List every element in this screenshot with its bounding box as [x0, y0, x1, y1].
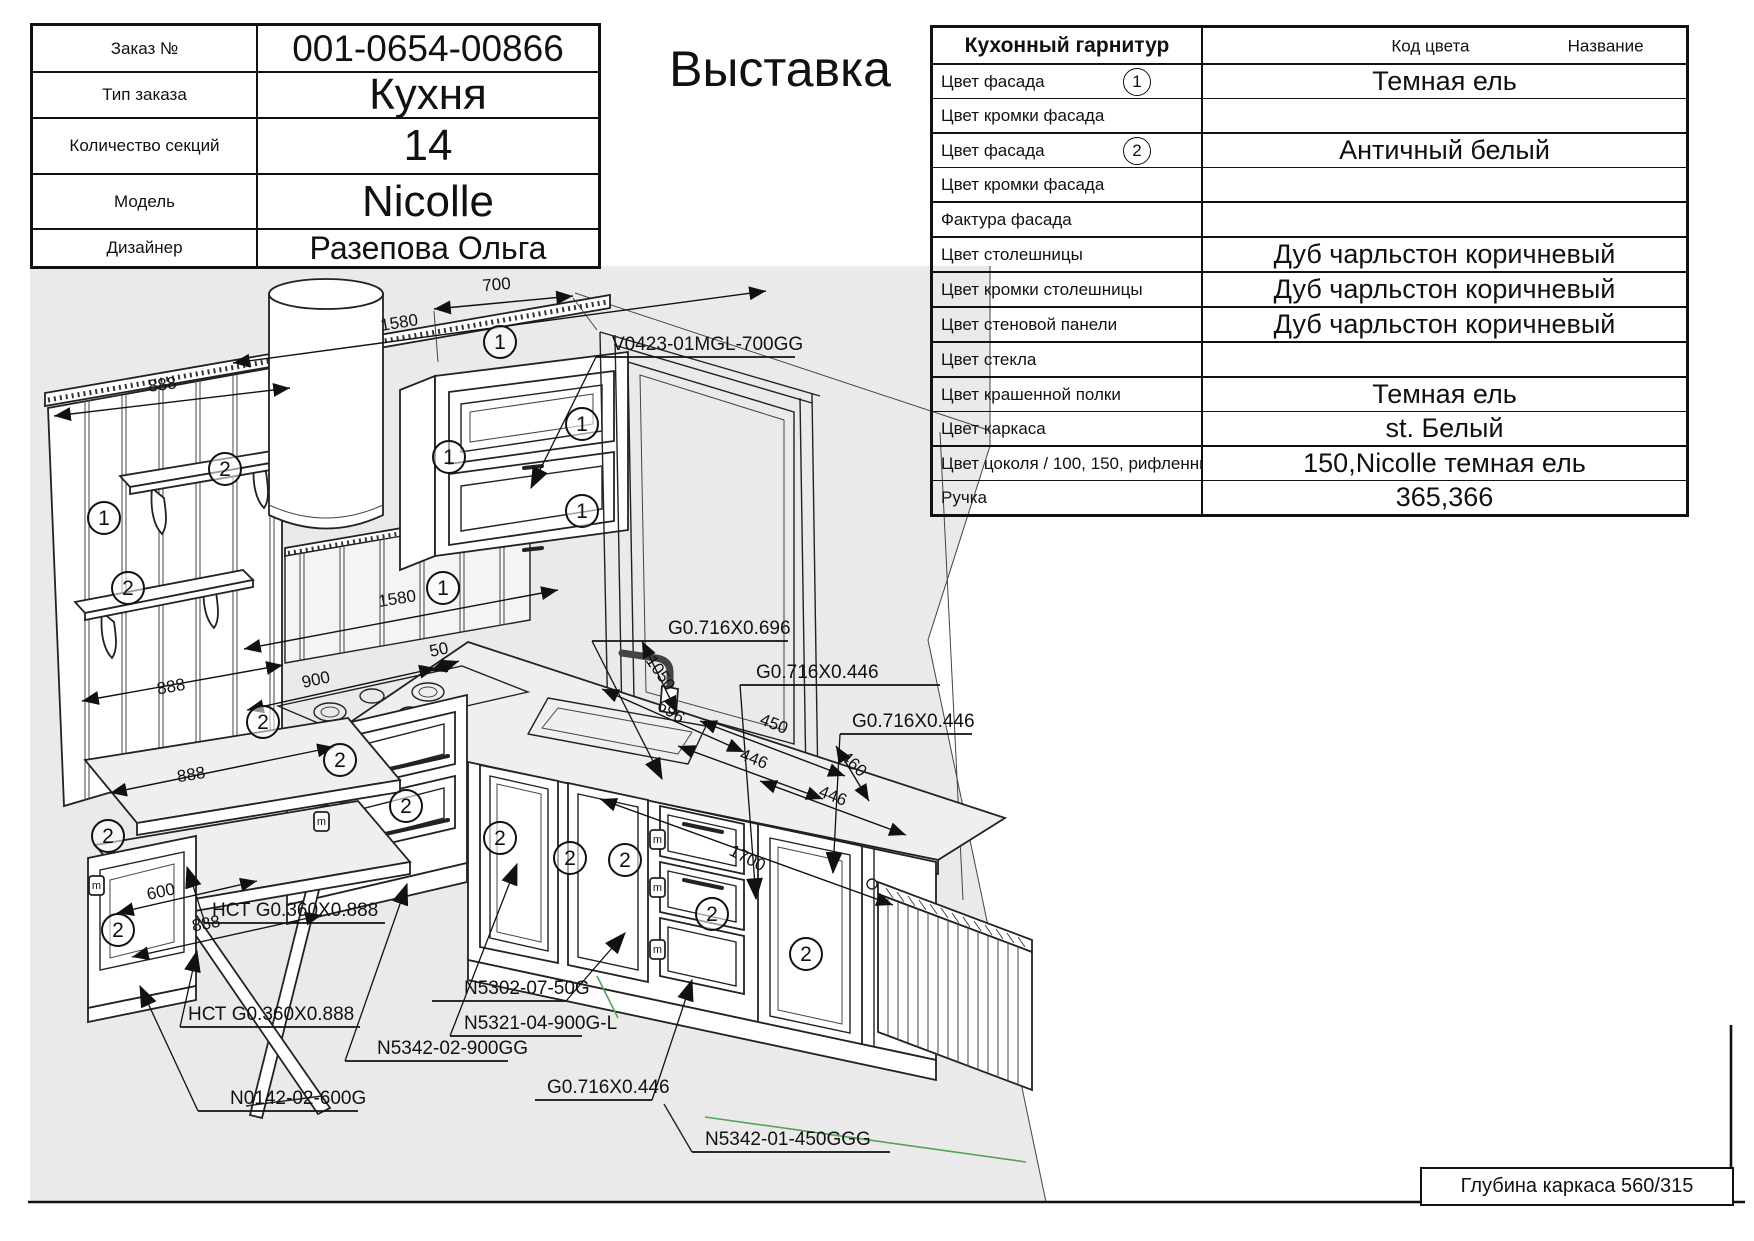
dim-888-wall: 888 [147, 373, 177, 395]
label-counter-446b: G0.716X0.446 [852, 711, 975, 732]
spec-row: Цвет фасада 1 Темная ель [933, 65, 1686, 99]
spec-row: Цвет стеновой панели Дуб чарльстон корич… [933, 308, 1686, 343]
marker-2: 2 [257, 711, 269, 734]
order-designer-label: Дизайнер [33, 230, 258, 266]
order-table: Заказ № 001-0654-00866 Тип заказа Кухня … [30, 23, 601, 269]
order-designer-value: Разепова Ольга [258, 230, 598, 266]
order-row-number: Заказ № 001-0654-00866 [33, 26, 598, 73]
m-tag: m [653, 944, 662, 956]
spec-value [1203, 99, 1686, 132]
m-tag: m [653, 834, 662, 846]
spec-label: Цвет крашенной полки [941, 385, 1121, 405]
label-table-cabinet: N0142-02-600G [230, 1088, 366, 1109]
spec-row: Цвет каркаса st. Белый [933, 412, 1686, 447]
spec-label: Цвет кромки столешницы [941, 280, 1143, 300]
spec-row: Цвет кромки столешницы Дуб чарльстон кор… [933, 273, 1686, 308]
label-table-top-a: НСТ G0.360X0.888 [212, 900, 378, 921]
facade-marker-1: 1 [1123, 68, 1151, 96]
spec-row: Цвет цоколя / 100, 150, рифленный 150,Ni… [933, 447, 1686, 481]
marker-2: 2 [494, 827, 506, 850]
m-tag: m [653, 882, 662, 894]
spec-row: Цвет кромки фасада [933, 168, 1686, 203]
marker-1: 1 [576, 413, 588, 436]
label-plinth: N5302-07-50G [464, 978, 590, 999]
spec-header-row: Кухонный гарнитур Код цвета Название [933, 28, 1686, 65]
spec-value: Античный белый [1203, 134, 1686, 167]
spec-row: Цвет стекла [933, 343, 1686, 378]
spec-table: Кухонный гарнитур Код цвета Название Цве… [930, 25, 1689, 517]
spec-label: Цвет столешницы [941, 245, 1083, 265]
label-stove-cabinet: N5342-02-900GG [377, 1038, 528, 1059]
marker-2: 2 [400, 795, 412, 818]
spec-value: Дуб чарльстон коричневый [1203, 238, 1686, 271]
marker-2: 2 [800, 943, 812, 966]
spec-row: Ручка 365,366 [933, 481, 1686, 514]
order-model-label: Модель [33, 175, 258, 228]
spec-label: Цвет стеновой панели [941, 315, 1117, 335]
order-row-type: Тип заказа Кухня [33, 73, 598, 119]
order-sections-value: 14 [258, 119, 598, 173]
marker-2: 2 [219, 458, 231, 481]
label-counter-446c: G0.716X0.446 [547, 1077, 670, 1098]
order-type-label: Тип заказа [33, 73, 258, 117]
spec-header-cols: Код цвета Название [1203, 28, 1686, 63]
spec-row: Фактура фасада [933, 203, 1686, 238]
order-sections-label: Количество секций [33, 119, 258, 173]
spec-row: Цвет крашенной полки Темная ель [933, 378, 1686, 412]
spec-value: Дуб чарльстон коричневый [1203, 273, 1686, 306]
label-corner-cabinet: N5342-01-450GGG [705, 1129, 871, 1150]
m-tag: m [317, 816, 326, 828]
spec-title: Кухонный гарнитур [933, 28, 1203, 63]
spec-value: st. Белый [1203, 412, 1686, 445]
spec-label: Ручка [941, 488, 987, 508]
spec-value: Дуб чарльстон коричневый [1203, 308, 1686, 341]
marker-2: 2 [102, 825, 114, 848]
marker-1: 1 [494, 331, 506, 354]
spec-value [1203, 168, 1686, 201]
spec-label: Цвет стекла [941, 350, 1036, 370]
order-model-value: Nicolle [258, 175, 598, 228]
spec-label: Цвет каркаса [941, 419, 1046, 439]
marker-2: 2 [706, 903, 718, 926]
spec-value: 365,366 [1203, 481, 1686, 514]
drawing-sheet: 700 1580 888 1580 900 50 888 888 600 888… [0, 0, 1754, 1241]
order-row-sections: Количество секций 14 [33, 119, 598, 175]
spec-label: Цвет кромки фасада [941, 106, 1104, 126]
page-title: Выставка [640, 40, 920, 98]
label-table-top-b: НСТ G0.360X0.888 [188, 1004, 354, 1025]
m-tag: m [92, 880, 101, 892]
spec-label: Фактура фасада [941, 210, 1072, 230]
spec-label: Цвет фасада [941, 72, 1045, 92]
col-name-header: Название [1568, 37, 1644, 54]
col-code-header: Код цвета [1391, 37, 1469, 54]
spec-row: Цвет кромки фасада [933, 99, 1686, 134]
marker-2: 2 [619, 849, 631, 872]
facade-marker-2: 2 [1123, 137, 1151, 165]
spec-value: Темная ель [1203, 65, 1686, 98]
order-number-value: 001-0654-00866 [258, 26, 598, 71]
spec-label: Цвет кромки фасада [941, 175, 1104, 195]
label-sink-cabinet: N5321-04-900G-L [464, 1013, 617, 1034]
carcass-depth-text: Глубина каркаса 560/315 [1461, 1175, 1694, 1198]
carcass-depth-box: Глубина каркаса 560/315 [1420, 1167, 1734, 1206]
marker-2: 2 [334, 749, 346, 772]
order-row-model: Модель Nicolle [33, 175, 598, 230]
spec-value [1203, 343, 1686, 376]
marker-2: 2 [112, 919, 124, 942]
spec-row: Цвет фасада 2 Античный белый [933, 134, 1686, 168]
marker-1: 1 [98, 507, 110, 530]
marker-1: 1 [576, 500, 588, 523]
hood [269, 279, 383, 529]
dim-50: 50 [428, 638, 450, 661]
label-counter-446a: G0.716X0.446 [756, 662, 879, 683]
marker-2: 2 [564, 847, 576, 870]
spec-row: Цвет столешницы Дуб чарльстон коричневый [933, 238, 1686, 273]
marker-1: 1 [437, 577, 449, 600]
spec-label: Цвет цоколя / 100, 150, рифленный [941, 454, 1221, 474]
label-counter-696: G0.716X0.696 [668, 618, 791, 639]
spec-label: Цвет фасада [941, 141, 1045, 161]
order-number-label: Заказ № [33, 26, 258, 71]
spec-value [1203, 203, 1686, 236]
marker-1: 1 [443, 446, 455, 469]
order-row-designer: Дизайнер Разепова Ольга [33, 230, 598, 266]
order-type-value: Кухня [258, 73, 598, 117]
marker-2: 2 [122, 577, 134, 600]
spec-value: Темная ель [1203, 378, 1686, 411]
dim-700: 700 [482, 274, 512, 295]
spec-value: 150,Nicolle темная ель [1203, 447, 1686, 480]
label-hood-cabinet: V0423-01MGL-700GG [612, 334, 803, 355]
